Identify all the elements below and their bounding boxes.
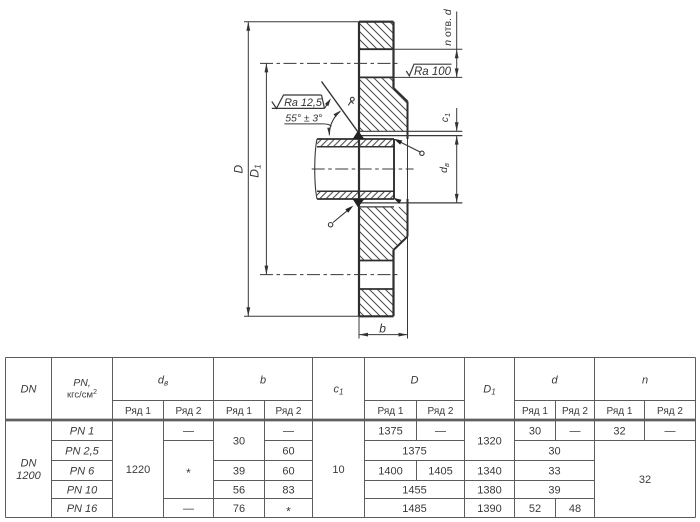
svg-text:Ряд 1: Ряд 1 [226,406,252,417]
svg-text:1405: 1405 [428,466,452,478]
svg-text:n отв. d: n отв. d [442,8,454,46]
svg-text:*: * [286,505,291,519]
svg-text:*: * [186,466,191,480]
svg-text:1390: 1390 [477,503,501,515]
svg-text:1455: 1455 [402,485,426,497]
svg-text:76: 76 [233,503,245,515]
svg-text:1375: 1375 [402,446,426,458]
svg-text:dв: dв [158,375,168,388]
svg-text:d: d [551,375,558,387]
svg-text:1220: 1220 [126,464,150,476]
svg-text:1380: 1380 [477,485,501,497]
svg-text:D: D [231,165,245,174]
svg-text:39: 39 [548,485,560,497]
svg-text:PN 16: PN 16 [67,503,98,515]
svg-text:1400: 1400 [378,466,402,478]
svg-text:—: — [570,425,581,437]
svg-text:—: — [283,425,294,437]
svg-text:32: 32 [639,474,651,486]
svg-text:30: 30 [233,435,245,447]
svg-text:DN: DN [21,458,37,470]
svg-text:30: 30 [548,446,560,458]
svg-text:Ряд 1: Ряд 1 [522,406,548,417]
svg-text:dв: dв [438,163,451,173]
svg-text:n: n [642,375,648,387]
svg-text:60: 60 [282,446,294,458]
svg-text:b: b [260,375,266,387]
svg-text:33: 33 [548,466,560,478]
svg-text:D1: D1 [483,384,495,397]
svg-text:60: 60 [282,466,294,478]
svg-text:Ряд 2: Ряд 2 [657,406,683,417]
svg-text:D1: D1 [247,164,262,178]
svg-text:DN: DN [21,384,37,396]
svg-text:32: 32 [613,425,625,437]
svg-text:Ra 12,5: Ra 12,5 [284,97,323,109]
svg-text:1200: 1200 [16,470,41,482]
svg-text:1340: 1340 [477,466,501,478]
svg-text:PN 6: PN 6 [70,466,95,478]
svg-text:PN 1: PN 1 [70,425,94,437]
svg-text:48: 48 [569,503,581,515]
svg-text:Ряд 1: Ряд 1 [125,406,151,417]
svg-text:—: — [183,503,194,515]
svg-text:56: 56 [233,485,245,497]
svg-text:Ряд 2: Ряд 2 [276,406,302,417]
svg-text:Ряд 2: Ряд 2 [176,406,202,417]
svg-text:83: 83 [282,485,294,497]
svg-text:55° ± 3°: 55° ± 3° [285,114,322,125]
svg-text:Ряд 2: Ряд 2 [562,406,588,417]
svg-text:30: 30 [529,425,541,437]
svg-text:10: 10 [332,464,344,476]
svg-text:Ra 100: Ra 100 [414,66,452,78]
svg-text:52: 52 [529,503,541,515]
svg-text:c1: c1 [334,384,344,397]
svg-text:D: D [411,375,419,387]
svg-text:PN 2,5: PN 2,5 [65,446,100,458]
svg-text:39: 39 [233,466,245,478]
svg-text:Ряд 1: Ряд 1 [607,406,633,417]
svg-text:—: — [183,425,194,437]
svg-text:Ряд 1: Ряд 1 [378,406,404,417]
svg-text:1485: 1485 [402,503,426,515]
svg-text:—: — [435,425,446,437]
svg-text:1320: 1320 [477,435,501,447]
svg-text:кгс/см2: кгс/см2 [67,389,97,401]
svg-text:b: b [379,321,386,335]
svg-text:PN,: PN, [73,377,91,389]
svg-text:Ряд 2: Ряд 2 [428,406,454,417]
svg-text:c1: c1 [439,113,452,122]
svg-text:—: — [665,425,676,437]
svg-text:PN 10: PN 10 [67,485,98,497]
svg-text:1375: 1375 [378,425,402,437]
